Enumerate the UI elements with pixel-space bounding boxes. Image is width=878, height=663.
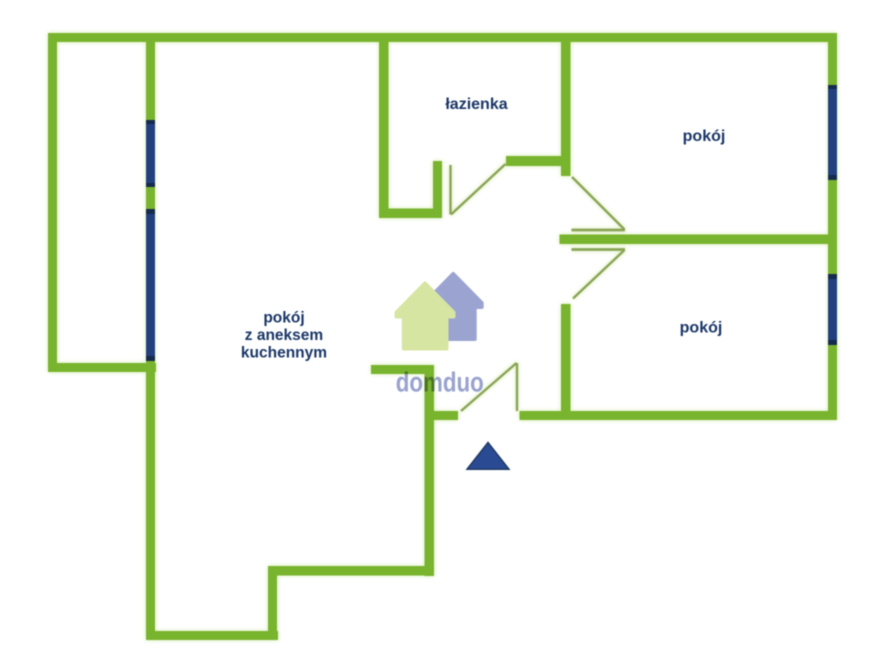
svg-text:pokój: pokój — [680, 320, 723, 337]
svg-text:kuchennym: kuchennym — [241, 344, 327, 361]
svg-text:pokój: pokój — [263, 310, 304, 327]
svg-text:łazienka: łazienka — [445, 96, 507, 113]
svg-text:z aneksem: z aneksem — [245, 327, 323, 344]
svg-text:pokój: pokój — [683, 128, 726, 145]
svg-text:domduo: domduo — [396, 367, 484, 398]
